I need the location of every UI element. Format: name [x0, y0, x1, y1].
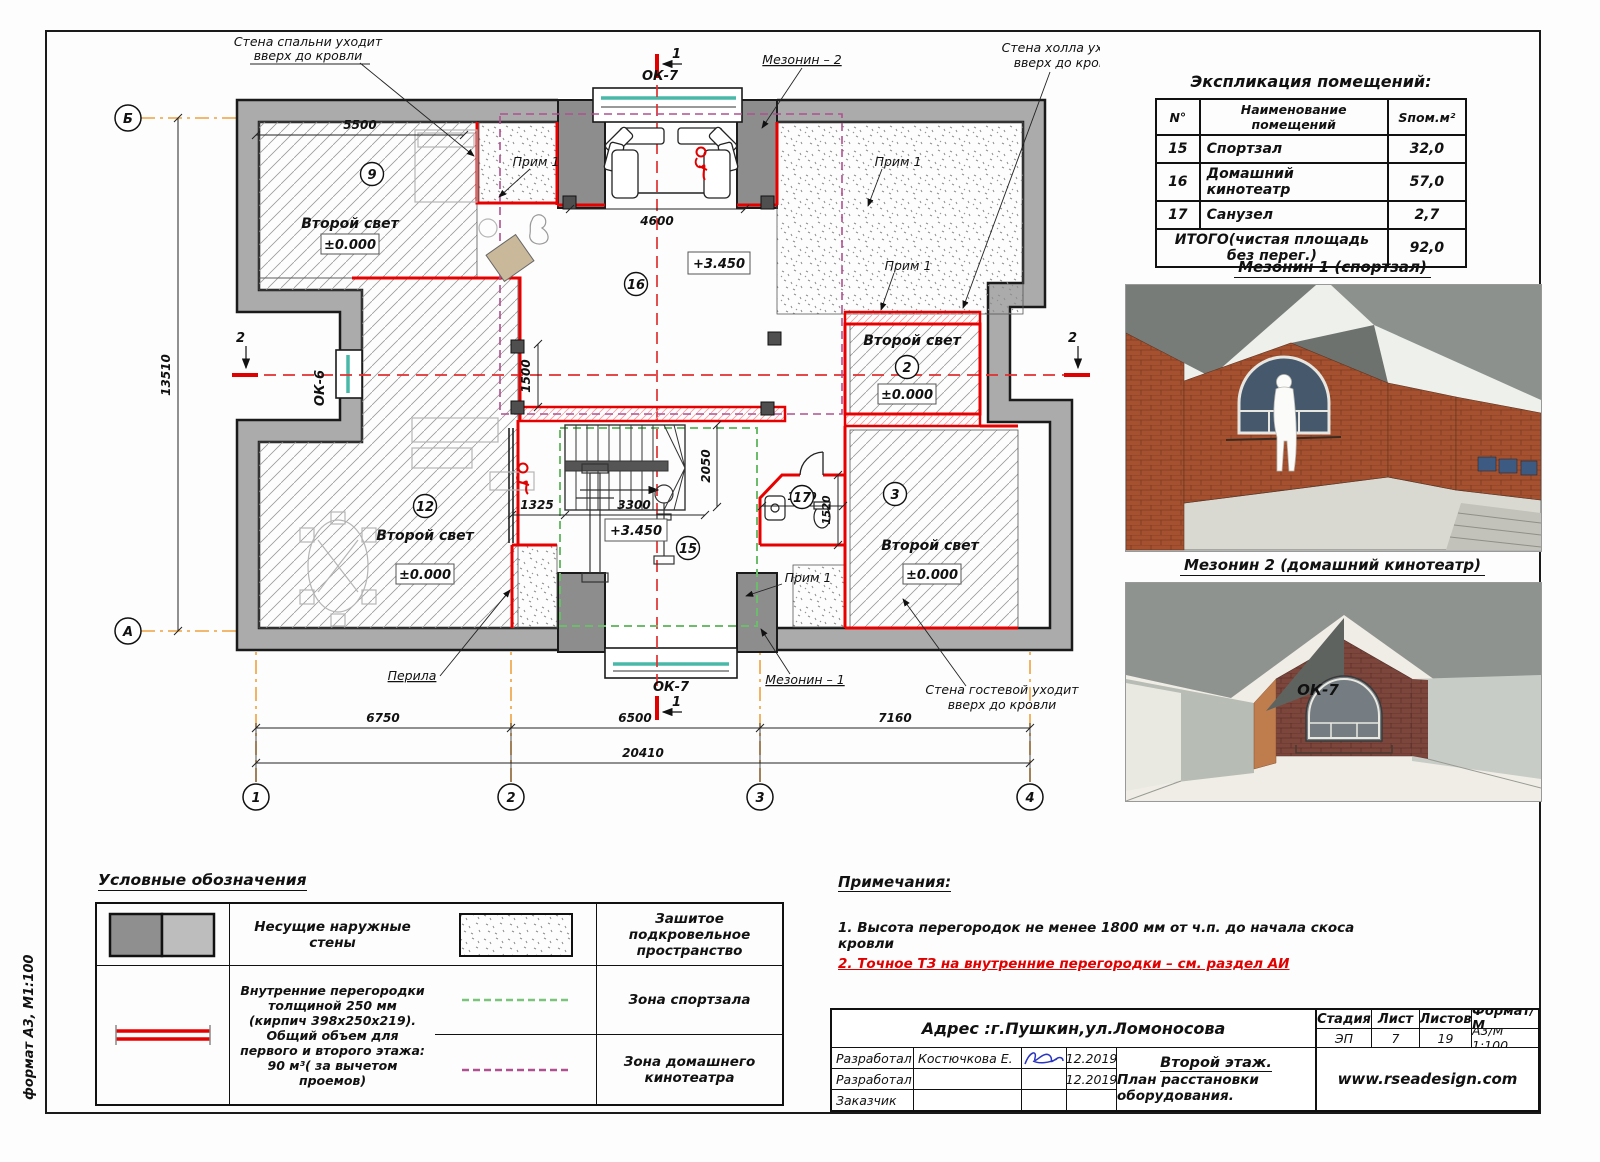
- col-header-name: Наименование помещений: [1200, 99, 1388, 135]
- legend-symbol-roofspace: [435, 904, 597, 966]
- room-number: 15: [1156, 135, 1200, 163]
- room-area: 32,0: [1388, 135, 1466, 163]
- second-light-3: Второй свет: [881, 538, 979, 554]
- room-9: 9: [367, 168, 376, 183]
- level-2: ±0.000: [881, 388, 933, 403]
- room-area: 2,7: [1388, 201, 1466, 229]
- callout-bedroom-wall-1: Стена спальни уходит: [234, 34, 383, 49]
- drawing-sheet: 5500 4600 13510 1500 1325 3300 2050 1900…: [0, 0, 1600, 1162]
- legend-symbol-partitions: [97, 966, 230, 1104]
- dim-2050: 2050: [699, 449, 713, 482]
- second-light-2: Второй свет: [863, 333, 961, 349]
- callout-mezzanine-1: Мезонин – 1: [765, 672, 844, 687]
- window-label-ok7-bottom: ОК-7: [653, 680, 690, 695]
- legend-symbol-gym-zone: [435, 966, 597, 1035]
- legend-label-cinema-zone: Зона домашнего кинотеатра: [597, 1035, 782, 1104]
- level-9: ±0.000: [324, 238, 376, 253]
- room-2: 2: [902, 361, 911, 376]
- signature-3: [1022, 1090, 1067, 1110]
- note-2: 2. Точное ТЗ на внутренние перегородки –…: [838, 956, 1398, 972]
- callout-prim-b: Прим 1: [785, 570, 832, 585]
- stage-label: Стадия: [1317, 1010, 1372, 1029]
- website: www.rseadesign.com: [1317, 1048, 1538, 1110]
- grid-1: 1: [251, 791, 260, 806]
- callout-guest-wall-2: вверх до кровли: [948, 697, 1057, 712]
- table-row: 16 Домашний кинотеатр 57,0: [1156, 163, 1466, 201]
- signature-icon: [1023, 1049, 1065, 1067]
- render-window-label: ОК-7: [1297, 681, 1339, 699]
- partition-symbol-icon: [108, 1021, 218, 1049]
- dim-4600: 4600: [639, 214, 673, 228]
- callout-bedroom-wall-2: вверх до кровли: [254, 48, 363, 63]
- room-17: 17: [793, 491, 812, 506]
- dim-7160: 7160: [878, 711, 911, 725]
- col-header-area: Sпом.м²: [1388, 99, 1466, 135]
- roofspace-symbol-icon: [458, 912, 574, 958]
- room-number: 17: [1156, 201, 1200, 229]
- format-side-label: формат А3, М1:100: [22, 940, 37, 1100]
- legend-label-walls: Несущие наружные стены: [230, 904, 435, 966]
- callout-perila: Перила: [388, 668, 437, 683]
- dim-13510: 13510: [159, 354, 173, 396]
- room-15: 15: [679, 542, 697, 557]
- signature-1: [1022, 1048, 1067, 1069]
- dim-6500: 6500: [618, 711, 651, 725]
- title-block: Адрес :г.Пушкин,ул.Ломоносова Стадия Лис…: [830, 1008, 1540, 1112]
- legend-label-partitions: Внутренние перегородки толщиной 250 мм (…: [230, 966, 435, 1104]
- callout-prim-r: Прим 1: [885, 258, 932, 273]
- explication: Экспликация помещений: N° Наименование п…: [1155, 72, 1467, 268]
- legend-label-roofspace: Зашитое подкровельное пространство: [597, 904, 782, 966]
- second-light-12: Второй свет: [376, 528, 474, 544]
- callout-hall-wall-1: Стена холла уходит: [1002, 40, 1100, 55]
- date-2: 12.2019: [1067, 1069, 1117, 1090]
- walls-symbol-icon: [108, 912, 218, 958]
- room-area: 57,0: [1388, 163, 1466, 201]
- room-12: 12: [416, 500, 434, 515]
- name-1: Костючкова Е.: [914, 1048, 1022, 1069]
- callout-prim-tr: Прим 1: [875, 154, 922, 169]
- window-ok7-bottom: [605, 648, 737, 678]
- doc-title: Второй этаж. План расстановки оборудован…: [1117, 1048, 1317, 1110]
- name-2: [914, 1069, 1022, 1090]
- sheets-value: 19: [1420, 1029, 1472, 1048]
- level-3: ±0.000: [906, 568, 958, 583]
- role-2: Разработал: [832, 1069, 914, 1090]
- signature-2: [1022, 1069, 1067, 1090]
- grid-a: А: [122, 625, 133, 640]
- theater-sofa: [604, 126, 739, 198]
- dim-1500: 1500: [519, 359, 533, 392]
- explication-title: Экспликация помещений:: [1155, 72, 1467, 91]
- section-1-top: 1: [672, 47, 681, 62]
- format-label: Формат/М: [1472, 1010, 1538, 1029]
- dim-1520: 1520: [821, 495, 833, 524]
- window-label-ok7-top: ОК-7: [642, 69, 679, 84]
- callout-hall-wall-2: вверх до кровли: [1014, 55, 1100, 70]
- notes: Примечания: 1. Высота перегородок не мен…: [838, 872, 1398, 972]
- window-ok6: [336, 350, 362, 398]
- sheet-label: Лист: [1372, 1010, 1420, 1029]
- legend-symbol-cinema-zone: [435, 1035, 597, 1104]
- note-1: 1. Высота перегородок не менее 1800 мм о…: [838, 920, 1398, 952]
- explication-table: N° Наименование помещений Sпом.м² 15 Спо…: [1155, 98, 1467, 268]
- floor-plan: 5500 4600 13510 1500 1325 3300 2050 1900…: [60, 28, 1100, 828]
- role-3: Заказчик: [832, 1090, 914, 1110]
- role-1: Разработал: [832, 1047, 914, 1069]
- address: Адрес :г.Пушкин,ул.Ломоносова: [832, 1010, 1317, 1048]
- window-ok7-top: [593, 88, 742, 122]
- legend-label-gym-zone: Зона спортзала: [597, 966, 782, 1035]
- doc-title-line-1: Второй этаж.: [1160, 1055, 1272, 1072]
- grid-b: Б: [123, 112, 133, 127]
- alcove-piers: [558, 100, 777, 652]
- level-12: ±0.000: [399, 568, 451, 583]
- grid-2: 2: [506, 791, 515, 806]
- callout-prim-tl: Прим 1: [513, 154, 560, 169]
- room-name: Санузел: [1200, 201, 1388, 229]
- cinema-zone-symbol-icon: [458, 1064, 574, 1076]
- col-header-number: N°: [1156, 99, 1200, 135]
- grid-3: 3: [755, 791, 764, 806]
- section-2-left: 2: [236, 331, 245, 346]
- dim-5500: 5500: [343, 118, 376, 132]
- grid-4: 4: [1024, 791, 1034, 806]
- callout-guest-wall-1: Стена гостевой уходит: [925, 682, 1079, 697]
- render-1-title: Мезонин 1 (спортзал): [1125, 258, 1540, 276]
- room-name: Спортзал: [1200, 135, 1388, 163]
- room-16: 16: [627, 278, 645, 293]
- level-16: +3.450: [693, 257, 745, 272]
- room-3: 3: [890, 488, 899, 503]
- second-light-9: Второй свет: [301, 216, 399, 232]
- columns: [511, 196, 781, 415]
- gym-zone-symbol-icon: [458, 994, 574, 1006]
- legend-symbol-walls: [97, 904, 230, 966]
- room-number: 16: [1156, 163, 1200, 201]
- dim-6750: 6750: [366, 711, 399, 725]
- date-3: [1067, 1090, 1117, 1110]
- window-label-ok6: ОК-6: [313, 370, 328, 406]
- sheets-label: Листов: [1420, 1010, 1472, 1029]
- section-2-right: 2: [1068, 331, 1077, 346]
- doc-title-line-2: План расстановки оборудования.: [1117, 1072, 1315, 1104]
- room-name: Домашний кинотеатр: [1200, 163, 1388, 201]
- table-row: 15 Спортзал 32,0: [1156, 135, 1466, 163]
- render-1-image: [1125, 284, 1542, 552]
- render-2-image: ОК-7: [1125, 582, 1542, 802]
- legend-title: Условные обозначения: [98, 870, 307, 891]
- dim-3300: 3300: [617, 498, 650, 512]
- level-15: +3.450: [610, 524, 662, 539]
- date-1: 12.2019: [1067, 1048, 1117, 1069]
- render-2-title: Мезонин 2 (домашний кинотеатр): [1125, 556, 1540, 574]
- table-row: N° Наименование помещений Sпом.м²: [1156, 99, 1466, 135]
- notes-title: Примечания:: [838, 873, 951, 892]
- stage-value: ЭП: [1317, 1029, 1372, 1048]
- name-3: [914, 1090, 1022, 1110]
- legend: Несущие наружные стены Внутренние перего…: [95, 902, 784, 1106]
- sheet-value: 7: [1372, 1029, 1420, 1048]
- format-value: А3/М 1:100: [1472, 1029, 1538, 1048]
- dim-20410: 20410: [622, 746, 664, 760]
- bathroom-door: [800, 452, 823, 475]
- armchair: [486, 235, 534, 282]
- dim-1325: 1325: [520, 498, 553, 512]
- table-row: 17 Санузел 2,7: [1156, 201, 1466, 229]
- section-1-bottom: 1: [672, 695, 681, 710]
- callout-mezzanine-2: Мезонин – 2: [762, 52, 841, 67]
